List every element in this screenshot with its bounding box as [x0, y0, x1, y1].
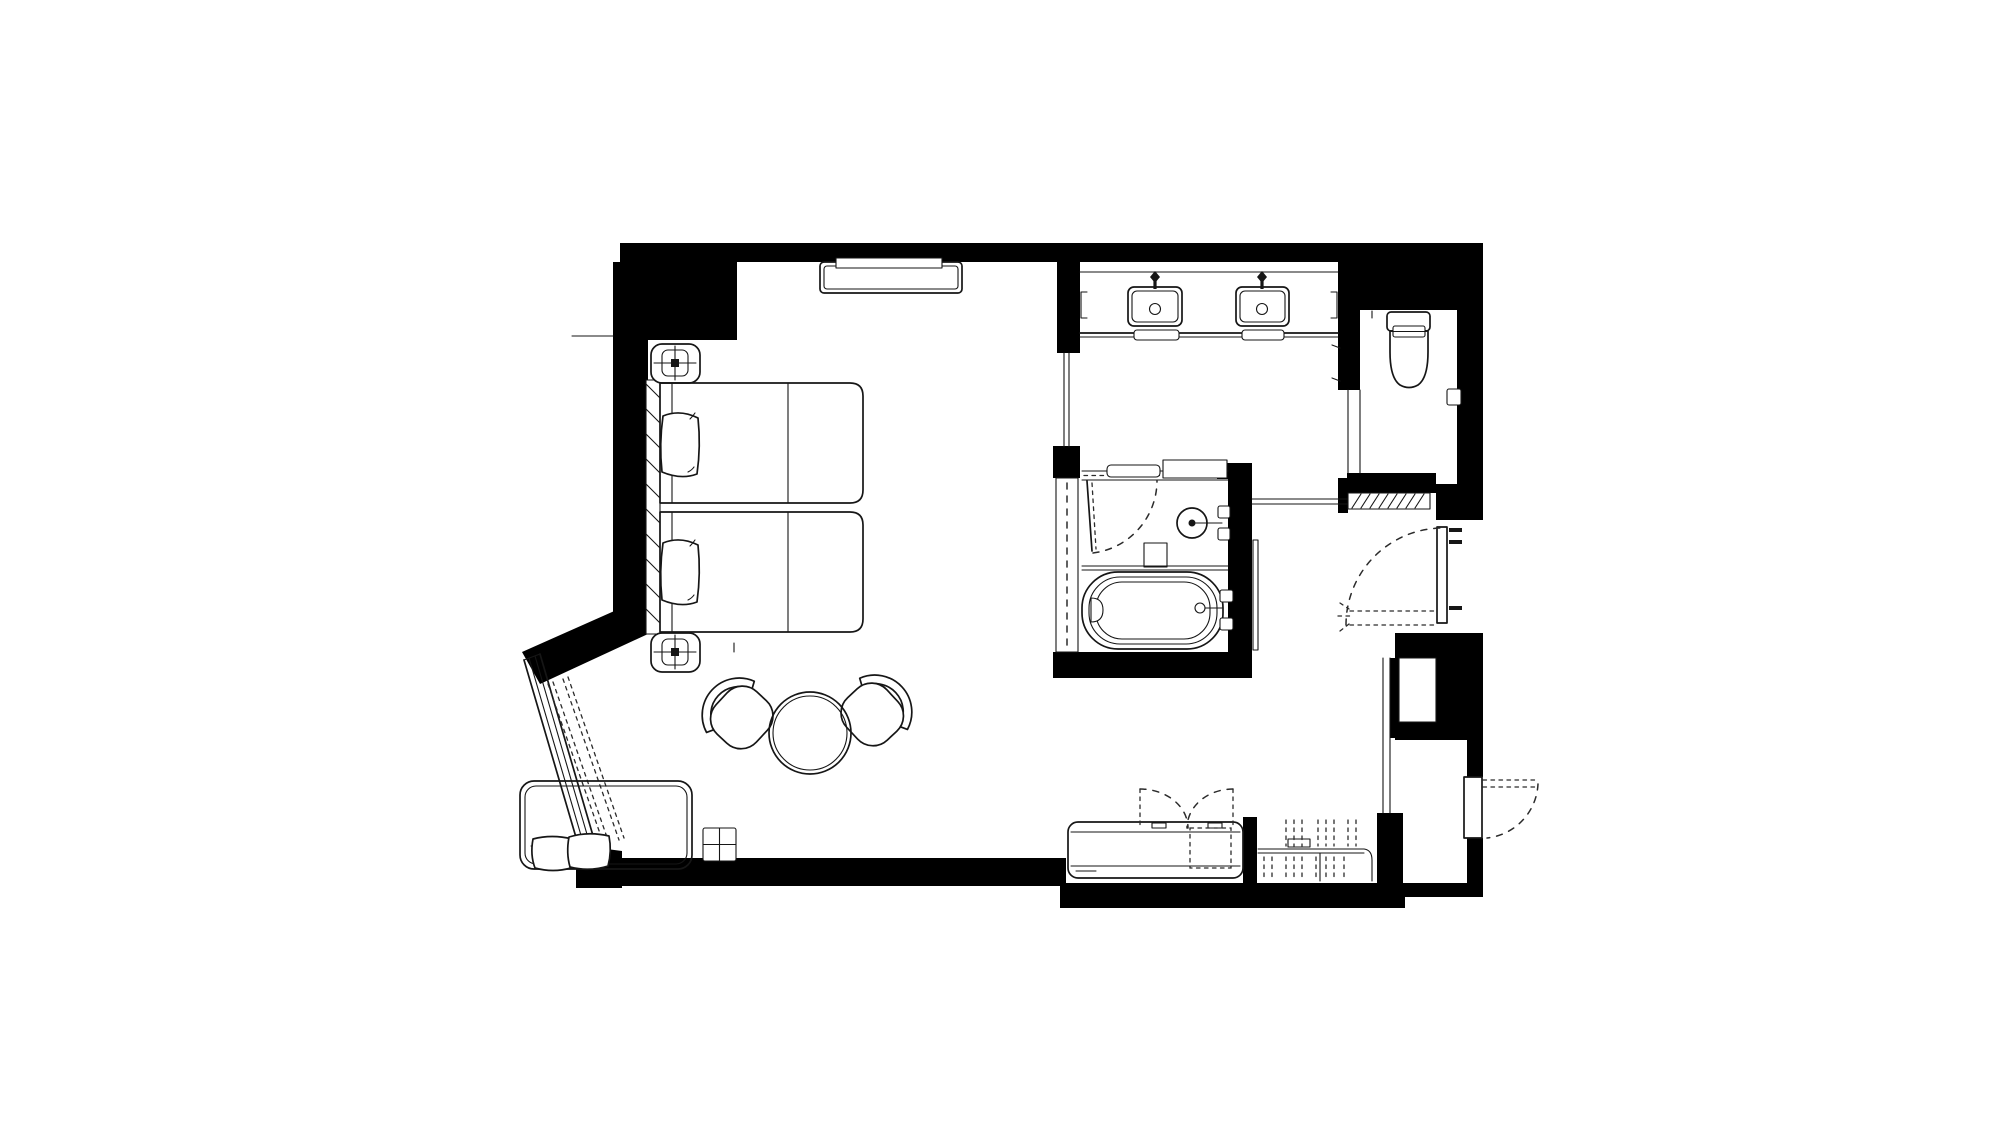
shower-valve: [1218, 506, 1230, 518]
closet-pocket-slot: [1383, 658, 1390, 813]
nightstand-south: [651, 633, 700, 672]
tub-faucet-icon: [1195, 590, 1233, 630]
headboard: [646, 380, 660, 634]
bed-1: [660, 383, 863, 503]
wall-angled-pier: [522, 596, 648, 684]
towel-bar-right: [1331, 292, 1337, 318]
drain: [1257, 304, 1268, 315]
floor-plan-drawing: [0, 0, 2000, 1125]
wc: [1372, 311, 1461, 405]
toilet: [1387, 312, 1430, 388]
wet-room-door: [1087, 481, 1157, 553]
handle: [1208, 823, 1222, 828]
floor-plan-page: [0, 0, 2000, 1125]
hall-mirror-panel: [1253, 540, 1258, 650]
wall-top: [620, 243, 1483, 262]
wall-west: [613, 262, 648, 622]
bed-2: [660, 512, 863, 632]
rod-bracket: [1288, 839, 1310, 847]
wall-vanity-east: [1338, 262, 1360, 390]
wall-south-bedroom: [576, 858, 1066, 886]
wall-ledge: [1163, 460, 1227, 478]
entry-door: [1338, 527, 1462, 631]
wall-wetroom-south: [1053, 652, 1252, 678]
tv-panel: [836, 258, 942, 268]
sink-left: [1128, 271, 1182, 326]
tv-credenza: [820, 258, 962, 293]
wall-slider-jamb: [1338, 478, 1348, 513]
wall-wc-south: [1347, 473, 1436, 493]
glass-partition: [1056, 478, 1078, 652]
connecting-door-swing-arc: [1487, 784, 1538, 838]
wall-south-hall: [1060, 883, 1405, 908]
nightstand-north: [651, 344, 700, 383]
connecting-door-leaf: [1464, 777, 1482, 838]
wall-wc-north: [1360, 243, 1483, 310]
wall-wetroom-nw: [1053, 446, 1080, 478]
wall-east-mid1: [1467, 740, 1483, 777]
entry-door-leaf: [1437, 527, 1447, 623]
bathtub: [1082, 572, 1233, 649]
wall-wardrobe-col: [1377, 813, 1403, 897]
wall-east-mid2: [1467, 838, 1483, 897]
connecting-door: [1464, 777, 1538, 838]
wall-entry-jamb-n: [1436, 484, 1483, 520]
wet-room: [1056, 460, 1258, 652]
tub-pillow: [1091, 598, 1103, 622]
angled-window: [524, 654, 624, 851]
hinge-hardware: [1449, 606, 1462, 610]
wall-partition-upper: [1057, 262, 1080, 353]
drain: [1150, 304, 1161, 315]
towel-shelf-left: [1134, 330, 1179, 340]
towel-shelf-right: [1242, 330, 1284, 340]
shower-bench: [1144, 543, 1167, 567]
wall-closet-n: [1395, 633, 1440, 658]
vanity-counter: [1080, 272, 1338, 337]
towel-ledge: [1107, 465, 1160, 477]
towel-bar-left: [1081, 292, 1087, 318]
luggage-bench: [1068, 789, 1243, 878]
wardrobe-rod: [1258, 820, 1372, 881]
sofa: [520, 781, 692, 871]
wall-bench-stub: [1243, 817, 1257, 883]
sofa-cushion: [568, 834, 611, 870]
hinge-hardware: [1449, 540, 1462, 544]
toilet-paper-holder: [1447, 389, 1461, 405]
round-table: [769, 692, 851, 774]
side-table: [703, 828, 736, 861]
shower-head-icon: [1177, 506, 1230, 540]
partition-glass-upper: [1064, 353, 1069, 447]
wall-closet-block-e: [1436, 633, 1483, 740]
wall-closet-s: [1395, 722, 1440, 740]
closet-niche: [1399, 658, 1436, 722]
hinge-hardware: [1449, 528, 1462, 532]
lounge-chair-right: [828, 661, 925, 759]
wall-wetroom-east: [1228, 463, 1252, 678]
handle: [1152, 823, 1166, 828]
shower-valve: [1218, 528, 1230, 540]
hanger-dashes: [1264, 820, 1356, 880]
sink-right: [1236, 271, 1289, 326]
